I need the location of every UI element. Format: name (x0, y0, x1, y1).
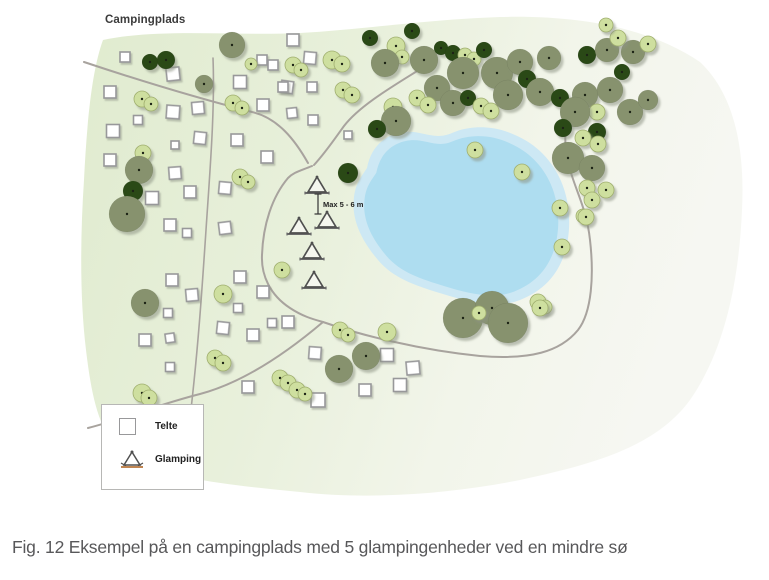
tree (378, 323, 396, 341)
tree-trunk-dot (586, 54, 588, 56)
tree-trunk-dot (452, 52, 454, 54)
tree (447, 57, 479, 89)
tent-marker (261, 151, 273, 163)
tree-trunk-dot (347, 334, 349, 336)
tree (526, 78, 554, 106)
tent-marker (394, 379, 407, 392)
tent-marker (185, 288, 198, 301)
tent-marker (120, 52, 130, 62)
tree (215, 355, 231, 371)
tree-trunk-dot (247, 181, 249, 183)
tree-trunk-dot (585, 216, 587, 218)
tree-trunk-dot (490, 110, 492, 112)
tree-trunk-dot (232, 102, 234, 104)
tree-trunk-dot (491, 307, 493, 309)
tree-trunk-dot (386, 331, 388, 333)
tree (590, 136, 606, 152)
tree-trunk-dot (292, 64, 294, 66)
tree-trunk-dot (559, 97, 561, 99)
tent-marker (359, 384, 371, 396)
tree (298, 387, 312, 401)
tree-trunk-dot (462, 72, 464, 74)
tent-marker (164, 219, 176, 231)
tree-trunk-dot (507, 322, 509, 324)
tree-trunk-dot (591, 167, 593, 169)
tree (362, 30, 378, 46)
tree (552, 200, 568, 216)
tree-trunk-dot (331, 59, 333, 61)
tree-trunk-dot (222, 362, 224, 364)
tent-marker (287, 34, 299, 46)
tent-marker (309, 347, 322, 360)
tree-trunk-dot (621, 71, 623, 73)
tent-marker (257, 55, 267, 65)
glamping-tent-icon (119, 448, 147, 470)
tree (334, 56, 350, 72)
legend: Telte Glamping (101, 404, 204, 490)
tree-trunk-dot (647, 99, 649, 101)
tent-marker (104, 86, 116, 98)
tree (537, 46, 561, 70)
tree-trunk-dot (521, 171, 523, 173)
tree-trunk-dot (351, 94, 353, 96)
tent-marker (139, 334, 151, 346)
tree (241, 175, 255, 189)
tree-trunk-dot (241, 107, 243, 109)
tree (578, 46, 596, 64)
tree (341, 328, 355, 342)
glamping-apex (326, 211, 329, 214)
tree-trunk-dot (126, 213, 128, 215)
tree-trunk-dot (586, 187, 588, 189)
tent-marker (183, 229, 192, 238)
tree-trunk-dot (539, 307, 541, 309)
tree-trunk-dot (548, 57, 550, 59)
tent-marker (234, 76, 247, 89)
tree-trunk-dot (596, 111, 598, 113)
tree (476, 42, 492, 58)
tree (599, 18, 613, 32)
figure-caption: Fig. 12 Eksempel på en campingplads med … (12, 537, 628, 558)
tent-marker (231, 134, 243, 146)
tree-trunk-dot (138, 169, 140, 171)
tree (589, 104, 605, 120)
tree-trunk-dot (582, 137, 584, 139)
tree (472, 306, 486, 320)
map-title: Campingplads (105, 14, 185, 26)
tree (532, 300, 548, 316)
tent-marker (234, 271, 246, 283)
tree-trunk-dot (629, 111, 631, 113)
tree (579, 155, 605, 181)
tree (554, 239, 570, 255)
tent-marker (234, 304, 243, 313)
tree (493, 80, 523, 110)
tent-marker (268, 60, 278, 70)
tree (109, 196, 145, 232)
tree (420, 97, 436, 113)
legend-label-glamping: Glamping (155, 454, 201, 465)
tree (575, 130, 591, 146)
tree-trunk-dot (436, 87, 438, 89)
tree-trunk-dot (474, 149, 476, 151)
tree-trunk-dot (539, 91, 541, 93)
tree-trunk-dot (150, 103, 152, 105)
tree (294, 63, 308, 77)
tree (554, 119, 572, 137)
tent-marker (257, 286, 269, 298)
tree (274, 262, 290, 278)
tent-marker (307, 82, 317, 92)
tree-trunk-dot (384, 62, 386, 64)
tree (352, 342, 380, 370)
tent-marker (166, 274, 178, 286)
tree-trunk-dot (496, 72, 498, 74)
tree (219, 32, 245, 58)
tree-trunk-dot (395, 45, 397, 47)
tent-marker (104, 154, 116, 166)
tent-marker (406, 361, 420, 375)
tree-trunk-dot (473, 58, 475, 60)
tent-marker (193, 131, 206, 144)
tent-marker (218, 181, 231, 194)
tree-trunk-dot (165, 59, 167, 61)
tree-trunk-dot (464, 54, 466, 56)
tree (368, 120, 386, 138)
tree-trunk-dot (411, 30, 413, 32)
tent-marker (278, 82, 288, 92)
tent-marker (169, 167, 182, 180)
tree-trunk-dot (281, 269, 283, 271)
tree (410, 46, 438, 74)
tree (614, 64, 630, 80)
tree (578, 209, 594, 225)
tent-marker (311, 393, 325, 407)
legend-item-tents: Telte (119, 418, 203, 435)
tent-marker (171, 141, 179, 149)
tree-trunk-dot (526, 78, 528, 80)
tent-square-icon (119, 418, 147, 435)
tent-marker (308, 115, 318, 125)
tree (144, 97, 158, 111)
tent-marker (282, 316, 294, 328)
tree (157, 51, 175, 69)
tree (584, 192, 600, 208)
tree-trunk-dot (574, 111, 576, 113)
tree (371, 49, 399, 77)
tent-marker (166, 363, 175, 372)
tree (467, 142, 483, 158)
tree-trunk-dot (142, 152, 144, 154)
tent-marker (166, 105, 180, 119)
tree-trunk-dot (617, 37, 619, 39)
tree (640, 36, 656, 52)
tree (488, 303, 528, 343)
tree-trunk-dot (507, 94, 509, 96)
tent-marker (218, 221, 231, 234)
tree-trunk-dot (347, 172, 349, 174)
tree-trunk-dot (239, 176, 241, 178)
tree-trunk-dot (341, 63, 343, 65)
tree-trunk-dot (584, 94, 586, 96)
tree-trunk-dot (596, 131, 598, 133)
tree (598, 182, 614, 198)
tree-trunk-dot (300, 69, 302, 71)
tree-trunk-dot (296, 389, 298, 391)
dimension-label: Max 5 - 6 m (323, 200, 364, 209)
glamping-apex (316, 176, 319, 179)
tree-trunk-dot (132, 190, 134, 192)
tree-trunk-dot (609, 89, 611, 91)
tent-marker (146, 192, 159, 205)
tree-trunk-dot (483, 49, 485, 51)
tree-trunk-dot (559, 207, 561, 209)
tree-trunk-dot (478, 312, 480, 314)
tree-trunk-dot (231, 44, 233, 46)
tent-marker (381, 349, 394, 362)
tree-trunk-dot (222, 293, 224, 295)
tree (338, 163, 358, 183)
tent-marker (247, 329, 259, 341)
tree-trunk-dot (250, 63, 252, 65)
tent-marker (344, 131, 352, 139)
tree (404, 23, 420, 39)
tree-trunk-dot (401, 56, 403, 58)
tree-trunk-dot (605, 189, 607, 191)
tree-trunk-dot (562, 127, 564, 129)
tent-marker (303, 51, 316, 64)
tree (325, 355, 353, 383)
tree (638, 90, 658, 110)
tree (131, 289, 159, 317)
legend-item-glamping: Glamping (119, 448, 203, 470)
tree-trunk-dot (141, 98, 143, 100)
tent-marker (165, 333, 175, 343)
tree-trunk-dot (452, 102, 454, 104)
tree-trunk-dot (632, 51, 634, 53)
tree (597, 77, 623, 103)
tree (125, 156, 153, 184)
tree-trunk-dot (304, 393, 306, 395)
tree (214, 285, 232, 303)
tree-trunk-dot (338, 368, 340, 370)
tree-trunk-dot (376, 128, 378, 130)
tent-marker (242, 381, 254, 393)
tree-trunk-dot (287, 382, 289, 384)
tree-trunk-dot (480, 105, 482, 107)
tent-marker (268, 319, 277, 328)
tent-marker (287, 108, 298, 119)
tree-trunk-dot (365, 355, 367, 357)
tree-trunk-dot (203, 83, 205, 85)
tree (344, 87, 360, 103)
tree-trunk-dot (395, 120, 397, 122)
tent-marker (257, 99, 269, 111)
tree-trunk-dot (591, 199, 593, 201)
tree-trunk-dot (462, 317, 464, 319)
tree-trunk-dot (369, 37, 371, 39)
tree-trunk-dot (567, 157, 569, 159)
tree-trunk-dot (423, 59, 425, 61)
glamping-apex (298, 217, 301, 220)
tree-trunk-dot (467, 97, 469, 99)
tent-marker (184, 186, 196, 198)
tree (245, 58, 257, 70)
tree-trunk-dot (606, 49, 608, 51)
tree (142, 54, 158, 70)
tree-trunk-dot (416, 97, 418, 99)
tree-trunk-dot (519, 61, 521, 63)
tree (235, 101, 249, 115)
tree-trunk-dot (148, 397, 150, 399)
tree-trunk-dot (440, 47, 442, 49)
tree-trunk-dot (144, 302, 146, 304)
tree (514, 164, 530, 180)
glamping-apex (313, 271, 316, 274)
tree (195, 75, 213, 93)
tree-trunk-dot (342, 89, 344, 91)
tent-marker (134, 116, 143, 125)
tent-marker (164, 309, 173, 318)
tree-trunk-dot (597, 143, 599, 145)
tent-marker (191, 101, 204, 114)
tree-trunk-dot (605, 24, 607, 26)
tree-trunk-dot (561, 246, 563, 248)
tent-marker (107, 125, 120, 138)
figure: Max 5 - 6 m Campingplads Telte Glamping … (0, 0, 769, 580)
tree-trunk-dot (647, 43, 649, 45)
tree-trunk-dot (427, 104, 429, 106)
tree (483, 103, 499, 119)
tree-trunk-dot (339, 329, 341, 331)
legend-label-tents: Telte (155, 421, 178, 432)
tree-trunk-dot (149, 61, 151, 63)
tent-marker (216, 321, 229, 334)
glamping-apex (311, 242, 314, 245)
tree (610, 30, 626, 46)
